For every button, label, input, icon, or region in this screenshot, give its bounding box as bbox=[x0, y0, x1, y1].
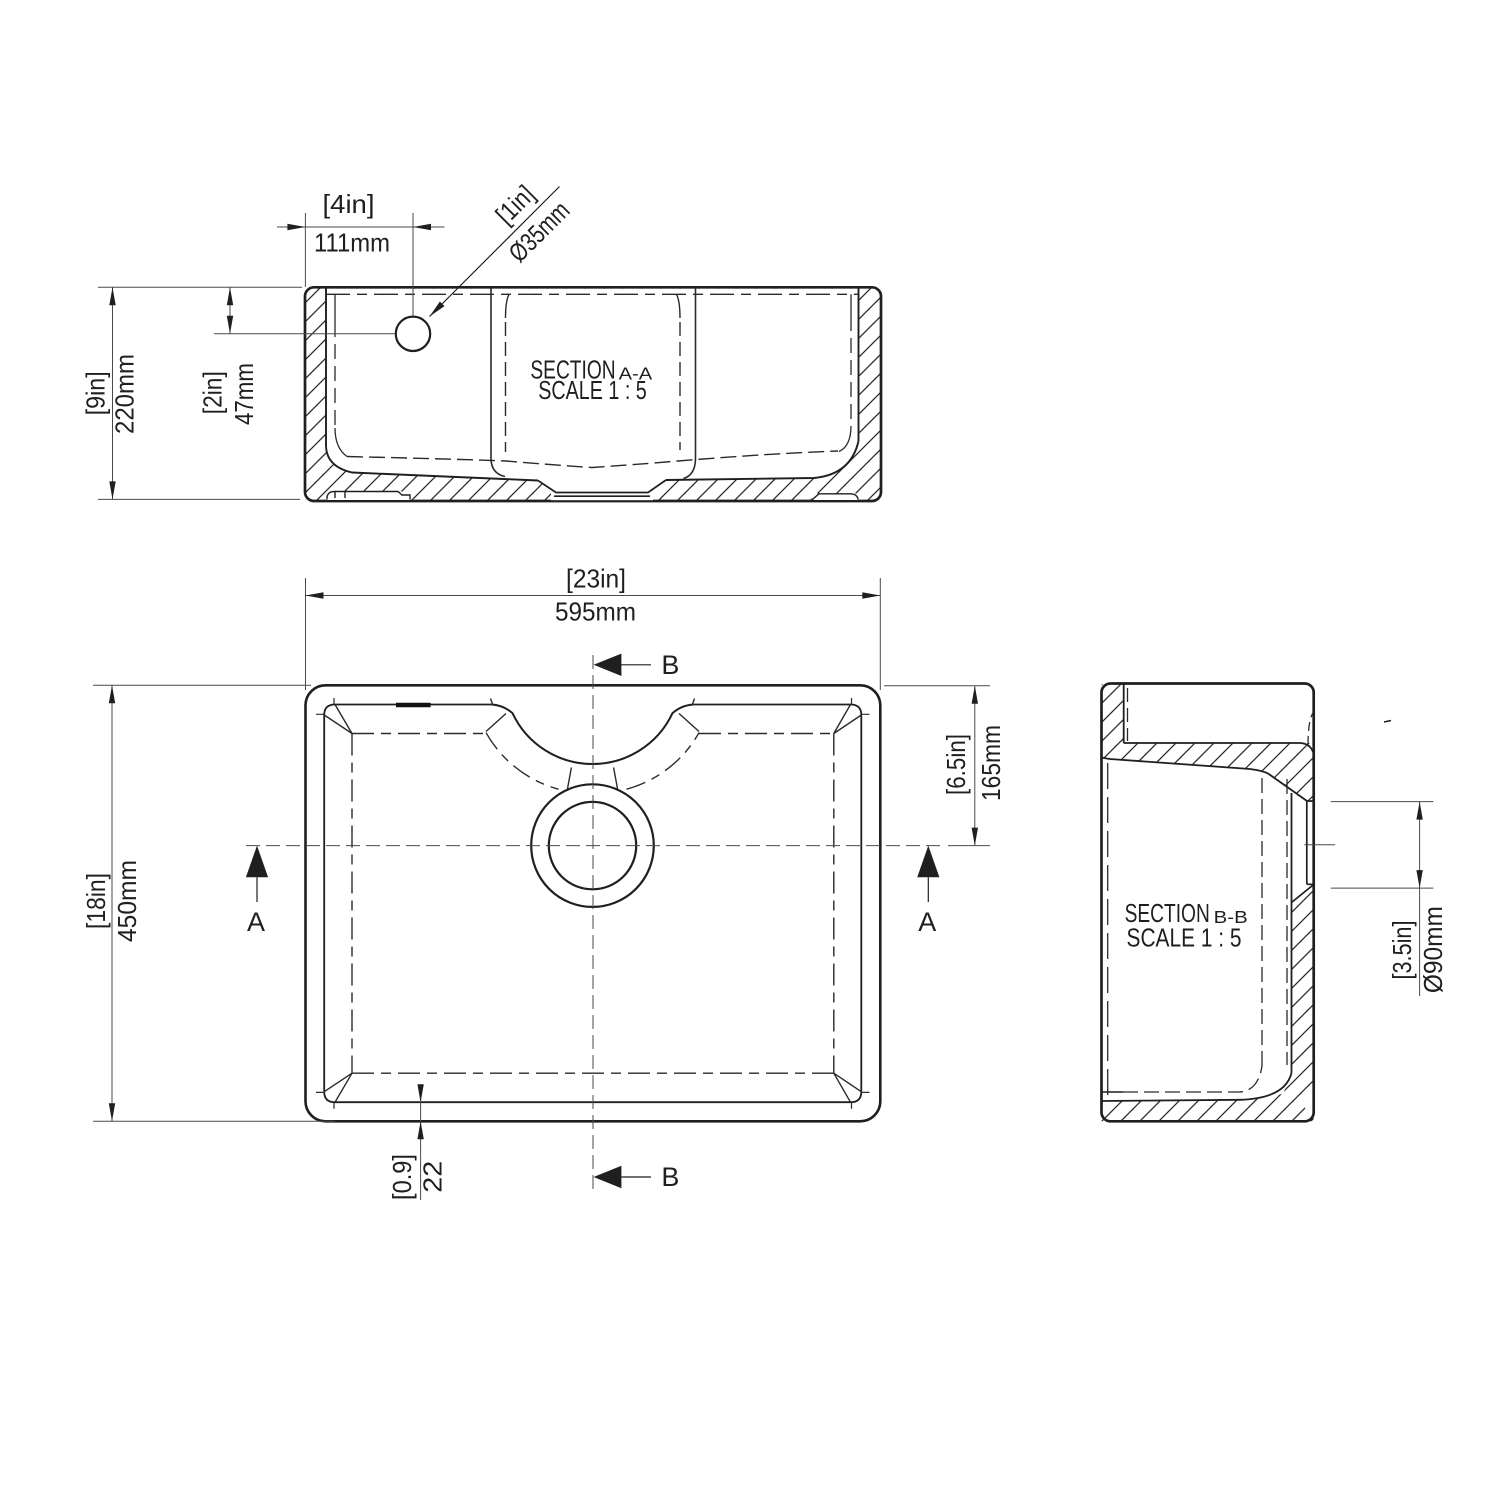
svg-text:165mm: 165mm bbox=[976, 725, 1006, 801]
svg-text:[23in]: [23in] bbox=[566, 564, 626, 594]
svg-text:SCALE 1 : 5: SCALE 1 : 5 bbox=[538, 377, 647, 405]
svg-text:[9in]: [9in] bbox=[80, 371, 110, 415]
svg-text:B: B bbox=[661, 650, 679, 680]
svg-text:[18in]: [18in] bbox=[81, 873, 111, 929]
svg-text:111mm: 111mm bbox=[314, 228, 390, 258]
svg-text:595mm: 595mm bbox=[555, 597, 636, 627]
svg-text:[3.5in]: [3.5in] bbox=[1387, 921, 1417, 980]
svg-text:[6.5in]: [6.5in] bbox=[941, 734, 971, 795]
svg-text:Ø90mm: Ø90mm bbox=[1418, 906, 1448, 993]
svg-text:SCALE 1 : 5: SCALE 1 : 5 bbox=[1127, 925, 1242, 953]
svg-text:47mm: 47mm bbox=[229, 363, 259, 425]
svg-text:[0.9]: [0.9] bbox=[387, 1154, 417, 1200]
svg-text:[4in]: [4in] bbox=[323, 189, 375, 219]
svg-text:A: A bbox=[247, 907, 265, 937]
svg-text:22: 22 bbox=[418, 1161, 448, 1193]
svg-text:450mm: 450mm bbox=[112, 860, 142, 942]
svg-text:[2in]: [2in] bbox=[198, 371, 228, 414]
svg-text:220mm: 220mm bbox=[110, 354, 140, 434]
svg-text:A: A bbox=[918, 907, 936, 937]
svg-text:B: B bbox=[661, 1162, 679, 1192]
